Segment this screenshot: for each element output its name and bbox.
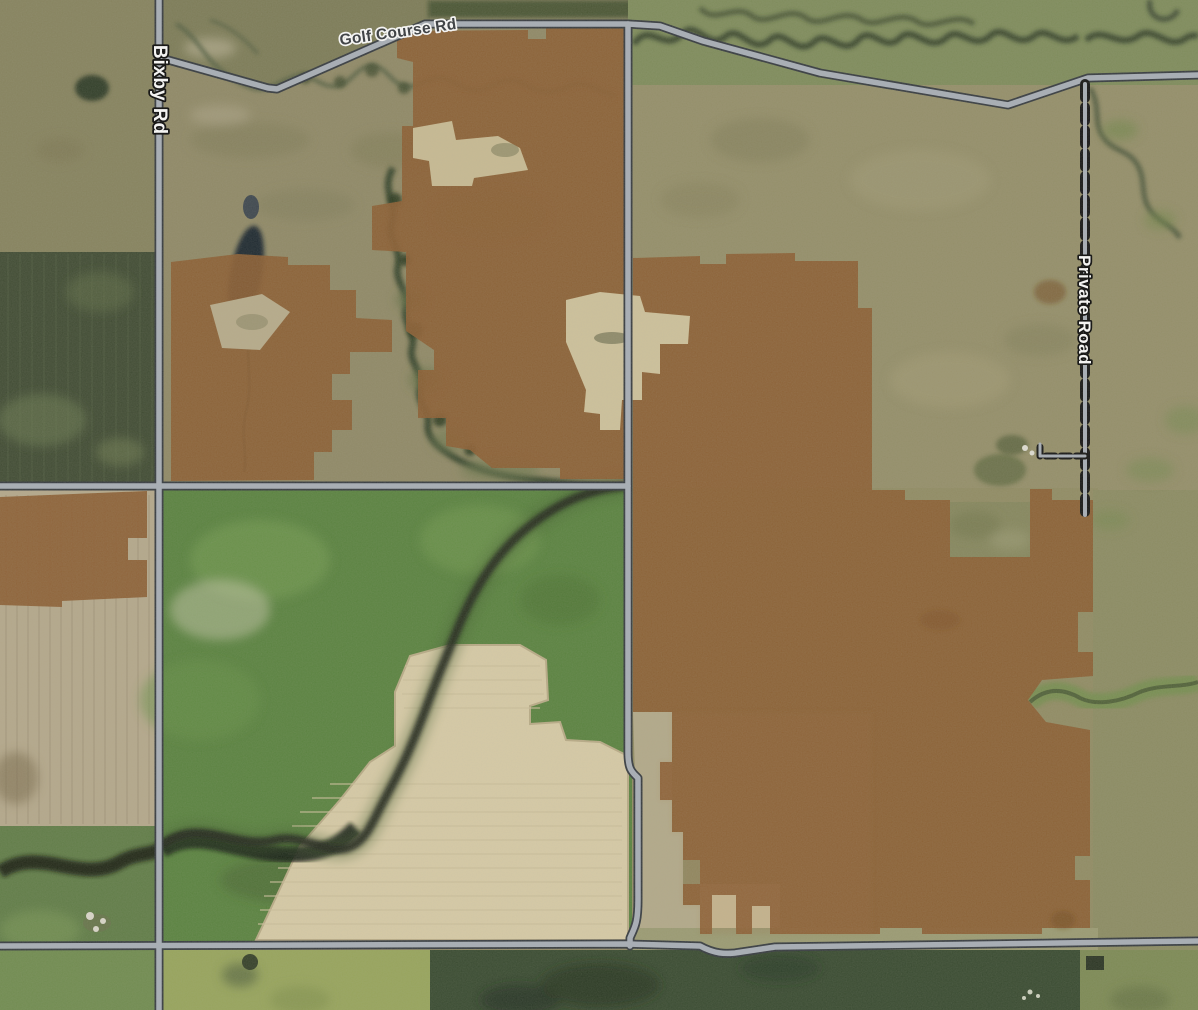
parcel-overlay-west-edge[interactable] (0, 491, 147, 607)
dark-patch-bottom (1086, 956, 1104, 970)
field-east-strip (1093, 490, 1198, 950)
pond-small (243, 195, 259, 219)
overlay-hole-midleft-smudge (236, 314, 268, 330)
map-viewport[interactable]: Golf Course Rd Bixby Rd Private Road (0, 0, 1198, 1010)
field-nw (0, 0, 162, 252)
tree-band-top (428, 0, 633, 18)
overlay-hole-island-smudge (491, 143, 519, 157)
tree-clump-nw (75, 75, 109, 101)
tree-clump-bottom (242, 954, 258, 970)
map-canvas[interactable]: Golf Course Rd Bixby Rd Private Road (0, 0, 1198, 1010)
road-label-private: Private Road (1075, 255, 1094, 365)
road-label-bixby: Bixby Rd (149, 45, 170, 135)
field-bottom-1 (0, 950, 158, 1010)
